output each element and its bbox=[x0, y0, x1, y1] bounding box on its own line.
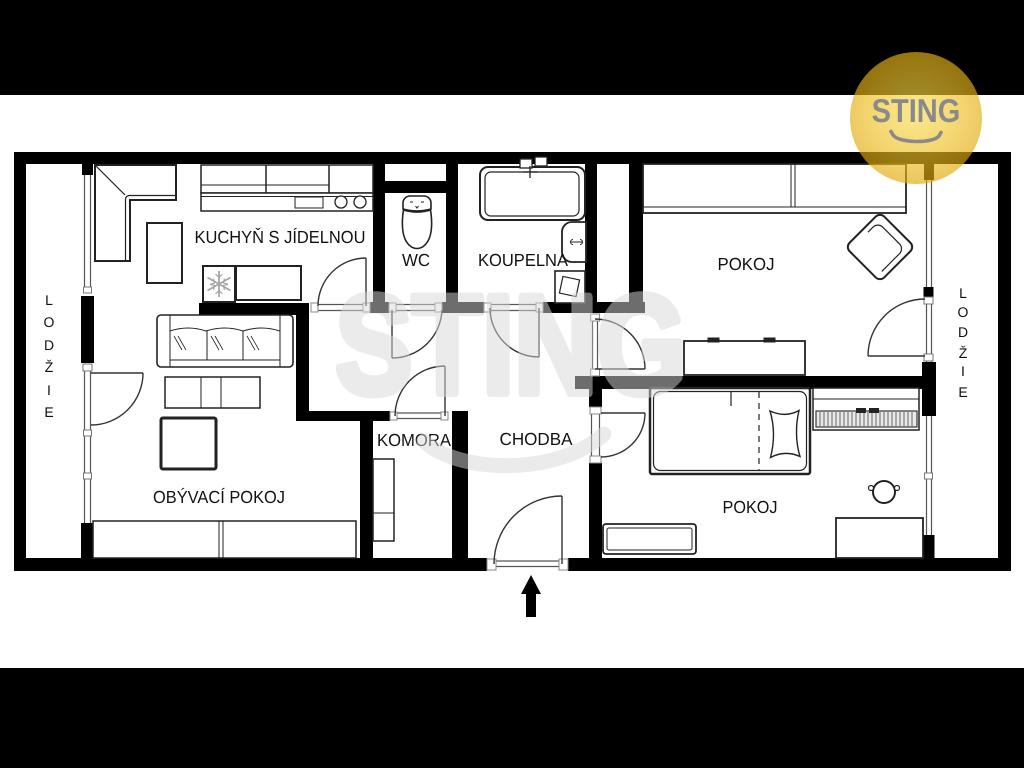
svg-text:OBÝVACÍ POKOJ: OBÝVACÍ POKOJ bbox=[153, 487, 285, 507]
svg-text:POKOJ: POKOJ bbox=[723, 497, 778, 517]
svg-text:I: I bbox=[47, 382, 51, 398]
svg-text:POKOJ: POKOJ bbox=[718, 254, 775, 274]
svg-text:L: L bbox=[959, 285, 967, 301]
svg-text:E: E bbox=[958, 384, 967, 400]
svg-text:O: O bbox=[44, 314, 55, 330]
svg-text:O: O bbox=[958, 304, 969, 320]
svg-text:STING: STING bbox=[872, 92, 961, 129]
svg-text:D: D bbox=[44, 337, 54, 353]
svg-text:KUCHYŇ S JÍDELNOU: KUCHYŇ S JÍDELNOU bbox=[195, 227, 366, 247]
svg-text:STING: STING bbox=[336, 266, 687, 423]
svg-text:Ž: Ž bbox=[959, 345, 968, 361]
svg-text:L: L bbox=[45, 292, 53, 308]
svg-text:E: E bbox=[44, 404, 53, 420]
svg-text:CHODBA: CHODBA bbox=[500, 429, 573, 449]
svg-text:I: I bbox=[961, 363, 965, 379]
svg-text:D: D bbox=[958, 324, 968, 340]
svg-text:Ž: Ž bbox=[45, 359, 54, 375]
